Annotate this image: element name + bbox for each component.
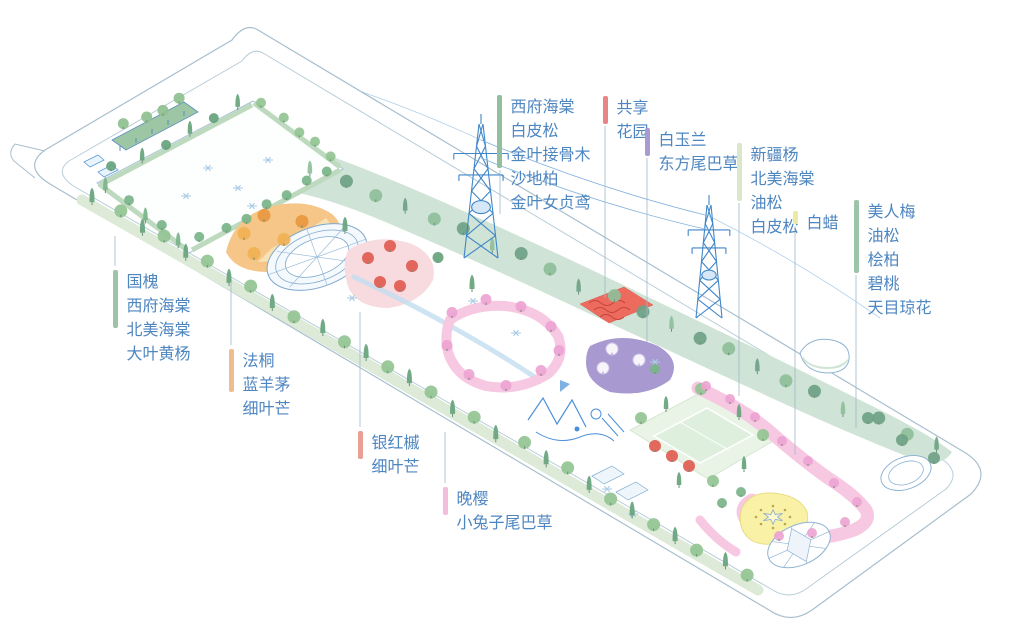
tree bbox=[664, 396, 669, 409]
tree bbox=[673, 527, 678, 541]
tree bbox=[188, 121, 193, 134]
tree bbox=[493, 425, 498, 439]
tree bbox=[320, 319, 325, 333]
tree bbox=[342, 217, 347, 231]
tree bbox=[469, 275, 474, 289]
pink-walk-spur bbox=[700, 520, 736, 552]
tree bbox=[140, 148, 145, 161]
tree bbox=[450, 400, 455, 414]
tree bbox=[270, 294, 275, 308]
tree bbox=[235, 94, 240, 107]
planting-plan-canvas: 西府海棠白皮松金叶接骨木沙地柏金叶女贞鸢共享花园白玉兰东方尾巴草新疆杨北美海棠油… bbox=[0, 0, 1022, 621]
tree bbox=[630, 501, 635, 515]
trellis-kiosk bbox=[84, 155, 104, 167]
west-entrance-stub bbox=[11, 144, 45, 178]
snowflake-paving bbox=[602, 486, 612, 492]
slide bbox=[602, 414, 624, 436]
snowflake-paving bbox=[511, 330, 521, 336]
tree bbox=[587, 476, 592, 490]
tree bbox=[407, 369, 412, 383]
tree bbox=[544, 450, 549, 464]
tree bbox=[364, 344, 369, 358]
zone-east-pond bbox=[800, 339, 849, 373]
tree bbox=[226, 269, 231, 283]
park-map-svg bbox=[0, 0, 1022, 621]
flag bbox=[560, 380, 570, 392]
tree bbox=[934, 437, 939, 450]
tree bbox=[677, 472, 682, 485]
tree bbox=[723, 552, 728, 566]
tree bbox=[89, 188, 94, 202]
